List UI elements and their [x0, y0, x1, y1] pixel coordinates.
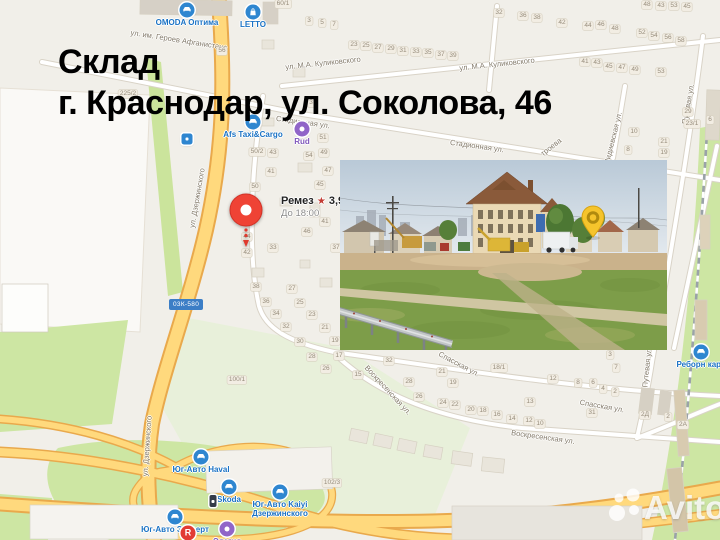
house-number: 16 [492, 411, 502, 419]
car-glyph [696, 347, 707, 358]
house-number: 47 [323, 167, 333, 175]
car-icon[interactable] [694, 345, 709, 360]
car-glyph [170, 512, 181, 523]
title-line-1: Склад [58, 42, 552, 83]
poi-label: Реборн карс [636, 360, 720, 369]
house-number: 23/1 [684, 120, 700, 128]
house-number: 46 [596, 21, 606, 29]
street-label: ул. Дзержинского [187, 167, 206, 228]
poi-label: Дзержинского [215, 509, 345, 518]
house-number: 2А [678, 421, 689, 429]
house-number: 3 [607, 351, 614, 359]
house-number: 54 [649, 32, 659, 40]
house-number: 8 [575, 379, 582, 387]
house-number: 52 [637, 29, 647, 37]
house-number: 32 [384, 357, 394, 365]
house-number: 22 [450, 401, 460, 409]
house-number: 25 [295, 299, 305, 307]
photo-scene [340, 160, 667, 350]
house-number: 48 [642, 1, 652, 9]
house-number: 21 [320, 324, 330, 332]
house-number: 60/1 [275, 0, 291, 8]
house-number: 26 [414, 393, 424, 401]
car-glyph [182, 5, 193, 16]
pin-hours: До 18:00 [281, 208, 344, 219]
house-number: 2 [612, 388, 619, 396]
house-number: 43 [592, 59, 602, 67]
poi-label: Юг-Авто Haval [136, 465, 266, 474]
street-label: Стадионная ул. [449, 138, 504, 154]
car-glyph [224, 482, 235, 493]
brand-r-icon[interactable]: R [181, 526, 196, 540]
street-label: троева [539, 136, 563, 158]
poi-label: Юг-Авто Kaiyi [215, 500, 345, 509]
house-number: 38 [532, 14, 542, 22]
street-label: Лидиевская ул. [602, 111, 624, 165]
house-number: 4 [600, 385, 607, 393]
house-number: 48 [610, 25, 620, 33]
house-number: 100/1 [227, 376, 246, 384]
house-number: 45 [604, 63, 614, 71]
house-number: 58 [676, 37, 686, 45]
location-pin-icon[interactable] [224, 188, 268, 252]
house-number: 14 [507, 415, 517, 423]
bus-stop-icon[interactable] [210, 495, 217, 507]
avito-watermark: Avito [604, 486, 720, 526]
house-number: 23 [307, 311, 317, 319]
rating-star-icon: ★ [317, 196, 326, 207]
house-number: 26 [321, 365, 331, 373]
transit-stop-icon[interactable] [182, 134, 193, 145]
house-number: 49 [630, 66, 640, 74]
house-number: 6 [707, 116, 714, 124]
house-number: 18/1 [491, 364, 507, 372]
house-number: 18 [478, 407, 488, 415]
house-number: 12 [524, 417, 534, 425]
bag-glyph [248, 7, 259, 18]
house-number: 10 [629, 128, 639, 136]
house-number: 47 [617, 64, 627, 72]
car-icon[interactable] [180, 3, 195, 18]
house-number: 42 [557, 19, 567, 27]
house-number: 38 [251, 283, 261, 291]
car-glyph [196, 452, 207, 463]
house-number: 53 [656, 68, 666, 76]
house-number: 33 [268, 244, 278, 252]
house-number: 21 [437, 368, 447, 376]
house-number: 45 [315, 181, 325, 189]
house-number: 54 [304, 152, 314, 160]
house-number: 43 [656, 2, 666, 10]
house-number: 28 [307, 353, 317, 361]
house-number: 29 [683, 108, 693, 116]
bag-icon[interactable] [246, 5, 261, 20]
street-label: Воскресенская ул. [511, 428, 576, 446]
map-screenshot: ул. им. Героев Афганистанаул. М.А. Кулик… [0, 0, 720, 540]
house-number: 102/3 [322, 479, 341, 487]
house-number: 21 [659, 138, 669, 146]
house-number: 10 [535, 420, 545, 428]
house-number: 44 [583, 22, 593, 30]
house-number: 46 [302, 228, 312, 236]
title-line-2: г. Краснодар, ул. Соколова, 46 [58, 83, 552, 124]
pin-label: Ремез ★ 3,9 До 18:00 [281, 195, 344, 219]
house-number: 13 [525, 398, 535, 406]
house-number: 27 [287, 285, 297, 293]
house-number: 17 [334, 352, 344, 360]
road-number-badge: 03К-580 [169, 299, 203, 310]
house-number: 41 [580, 58, 590, 66]
car-icon[interactable] [222, 480, 237, 495]
house-number: 41 [320, 218, 330, 226]
house-number: 50/2 [249, 148, 265, 156]
house-number: 43 [268, 149, 278, 157]
house-number: 20 [466, 406, 476, 414]
house-number: 19 [448, 379, 458, 387]
house-number: 12 [548, 375, 558, 383]
house-number: 49 [319, 149, 329, 157]
house-number: 56 [663, 34, 673, 42]
house-number: 41 [266, 168, 276, 176]
house-number: 15 [353, 371, 363, 379]
car-icon[interactable] [194, 450, 209, 465]
house-number: 8 [625, 146, 632, 154]
house-number: 36 [518, 12, 528, 20]
house-number: 7 [331, 21, 338, 29]
house-number: 19 [330, 337, 340, 345]
house-number: 7 [613, 364, 620, 372]
house-number: 45 [682, 3, 692, 11]
car-icon[interactable] [273, 485, 288, 500]
street-label: Воскресенская ул. [363, 363, 413, 416]
house-number: 31 [587, 409, 597, 417]
house-number: 24 [438, 399, 448, 407]
avito-logo-icon [604, 486, 642, 526]
poi-label: LETTO [188, 20, 318, 29]
poi-label: Rud [237, 137, 367, 146]
pin-title: Ремез ★ 3,9 [281, 195, 344, 207]
house-number: 53 [669, 2, 679, 10]
house-number: 6 [590, 379, 597, 387]
street-label: Путевая ул. [680, 83, 696, 125]
car-glyph [275, 487, 286, 498]
house-number: 2 [665, 413, 672, 421]
car-icon[interactable] [168, 510, 183, 525]
page-title: Склад г. Краснодар, ул. Соколова, 46 [58, 42, 552, 124]
house-number: 2Д [639, 411, 650, 419]
house-number: 5 [319, 19, 326, 27]
house-number: 32 [281, 323, 291, 331]
house-number: 36 [261, 298, 271, 306]
house-number: 30 [295, 338, 305, 346]
house-number: 28 [404, 378, 414, 386]
poi-dot-icon[interactable] [220, 522, 235, 537]
house-number: 32 [494, 9, 504, 17]
house-number: 19 [659, 149, 669, 157]
avito-watermark-text: Avito [644, 490, 720, 526]
house-number: 34 [271, 310, 281, 318]
street-view-photo [340, 160, 667, 350]
